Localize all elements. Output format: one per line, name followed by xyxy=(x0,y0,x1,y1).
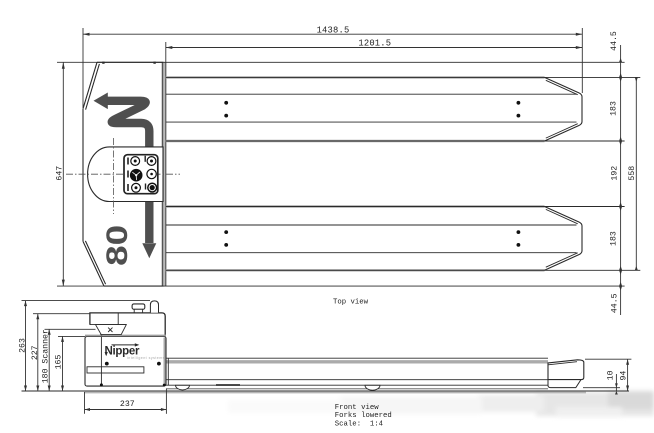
svg-text:44.5: 44.5 xyxy=(610,31,619,51)
svg-text:Scale: 1:4: Scale: 1:4 xyxy=(335,421,384,429)
svg-text:10: 10 xyxy=(606,370,615,380)
svg-text:80: 80 xyxy=(101,225,134,266)
svg-text:Top view: Top view xyxy=(333,299,369,307)
svg-text:227: 227 xyxy=(31,345,40,360)
svg-text:165: 165 xyxy=(54,355,63,370)
svg-text:intelligent systems: intelligent systems xyxy=(127,356,165,360)
svg-text:183: 183 xyxy=(610,101,619,116)
svg-text:Front view: Front view xyxy=(335,404,379,412)
svg-text:44.5: 44.5 xyxy=(610,293,619,313)
svg-text:180 Scanner: 180 Scanner xyxy=(42,329,51,383)
svg-text:183: 183 xyxy=(610,231,619,246)
svg-text:94: 94 xyxy=(620,371,629,381)
svg-text:263: 263 xyxy=(19,338,28,353)
svg-text:192: 192 xyxy=(611,166,620,181)
svg-text:558: 558 xyxy=(628,166,637,181)
svg-text:647: 647 xyxy=(56,166,65,181)
svg-text:1438.5: 1438.5 xyxy=(317,25,350,35)
svg-text:Forks lowered: Forks lowered xyxy=(335,412,392,420)
svg-text:1201.5: 1201.5 xyxy=(358,38,391,48)
svg-text:237: 237 xyxy=(120,400,135,409)
